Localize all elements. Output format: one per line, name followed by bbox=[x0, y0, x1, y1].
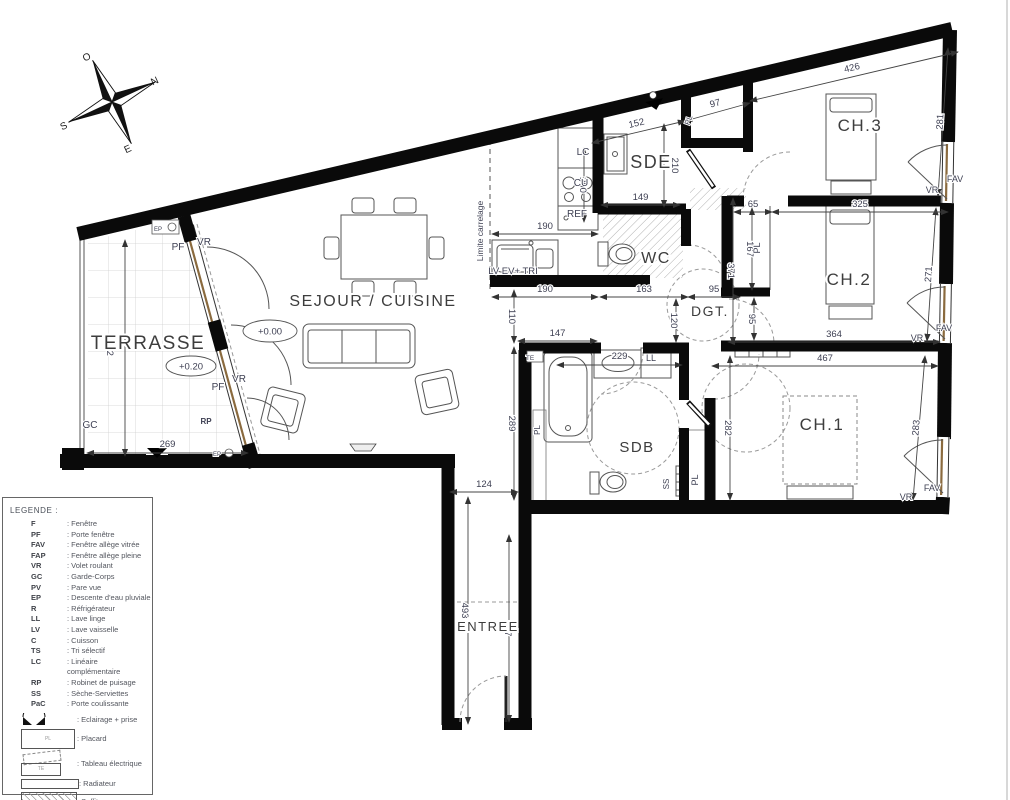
dimension-label: 147 bbox=[550, 328, 566, 339]
sliding-door-sde bbox=[688, 150, 714, 188]
legend-title: LEGENDE : bbox=[10, 506, 152, 515]
armchair bbox=[414, 368, 459, 415]
plan-annotation: VR bbox=[232, 374, 246, 385]
plan-annotation: VR bbox=[911, 333, 924, 343]
plan-annotation: PL bbox=[683, 113, 695, 126]
room-label: DGT. bbox=[691, 303, 729, 319]
plan-annotation: LL bbox=[646, 353, 656, 363]
legend-entry: RP : Robinet de puisage bbox=[3, 678, 152, 689]
legend-abbr: LL bbox=[31, 614, 67, 625]
plan-annotation: EP bbox=[154, 227, 162, 233]
legend-abbr: LC bbox=[31, 657, 67, 668]
legend-label: : Fenêtre allège vitrée bbox=[67, 540, 140, 551]
bathtub bbox=[544, 352, 592, 442]
hob-burner bbox=[565, 193, 574, 202]
legend-symbol-eclairage: : Eclairage + prise bbox=[13, 713, 152, 726]
legend-abbr: FAP bbox=[31, 551, 67, 562]
dimension-label: 95 bbox=[709, 284, 720, 295]
compass-letter: N bbox=[149, 75, 160, 88]
tv-icon bbox=[350, 444, 376, 451]
legend-entry: VR : Volet roulant bbox=[3, 561, 152, 572]
dimension-label: 229 bbox=[612, 351, 628, 362]
legend-label: : Porte coulissante bbox=[67, 699, 129, 710]
plan-annotation: FAV bbox=[936, 323, 952, 333]
armchair bbox=[260, 386, 307, 434]
room-label: ENTREE bbox=[457, 619, 519, 634]
legend-label: : Pare vue bbox=[67, 583, 101, 594]
legend-label: : Tri sélectif bbox=[67, 646, 105, 657]
legend-abbr: F bbox=[31, 519, 67, 530]
legend-label: : Réfrigérateur bbox=[67, 604, 115, 615]
dimension-label: 371 bbox=[725, 263, 736, 279]
plan-annotation: FAV bbox=[924, 483, 940, 493]
tableau-electrique-icon: TE bbox=[21, 752, 65, 776]
legend-entry: R : Réfrigérateur bbox=[3, 604, 152, 615]
room-label: CH.3 bbox=[838, 116, 883, 135]
legend-abbr: R bbox=[31, 604, 67, 615]
dimension-label: 283 bbox=[910, 419, 922, 436]
compass-letter: O bbox=[81, 51, 93, 64]
legend-entry: GC : Garde-Corps bbox=[3, 572, 152, 583]
outer-wall-right bbox=[948, 30, 950, 142]
plan-annotation: VR bbox=[926, 185, 939, 195]
dimension-label: 95 bbox=[746, 314, 757, 325]
plan-annotation: GC bbox=[83, 420, 98, 431]
plan-annotation: RP bbox=[200, 417, 212, 426]
plan-annotation: PF bbox=[212, 382, 225, 393]
legend-symbol-radiateur: : Radiateur bbox=[13, 779, 152, 789]
legend-label: : Descente d'eau pluviale bbox=[67, 593, 151, 604]
dimension-label: 282 bbox=[722, 420, 733, 436]
room-label: SEJOUR / CUISINE bbox=[289, 293, 456, 310]
dimension-label: 281 bbox=[934, 114, 946, 131]
plan-annotation: SS bbox=[662, 479, 671, 490]
wc-door-arc bbox=[688, 245, 726, 283]
legend-panel: LEGENDE : F : Fenêtre PF : Porte fenêtre… bbox=[2, 497, 153, 795]
legend-label: : Lave linge bbox=[67, 614, 105, 625]
dimension-label: 289 bbox=[506, 416, 517, 432]
dimension-label: 325 bbox=[852, 199, 868, 210]
legend-entry: FAV : Fenêtre allège vitrée bbox=[3, 540, 152, 551]
legend-label: : Cuisson bbox=[67, 636, 98, 647]
wc-toilet bbox=[598, 242, 635, 266]
legend-abbr: VR bbox=[31, 561, 67, 572]
legend-label: : Lave vaisselle bbox=[67, 625, 118, 636]
legend-abbr: RP bbox=[31, 678, 67, 689]
legend-abbr: SS bbox=[31, 689, 67, 700]
room-label: CH.2 bbox=[827, 270, 872, 289]
floorplan-page: ONSE 42697152281271283210149200190190163… bbox=[0, 0, 1010, 800]
dimension-label: 190 bbox=[537, 284, 553, 295]
dimension-label: 269 bbox=[160, 439, 176, 450]
room-label: CH.1 bbox=[800, 415, 845, 434]
legend-abbr: TS bbox=[31, 646, 67, 657]
legend-abbr: GC bbox=[31, 572, 67, 583]
room-label: SDB bbox=[619, 439, 654, 456]
plan-annotation: VR bbox=[197, 237, 211, 248]
legend-entry: LV : Lave vaisselle bbox=[3, 625, 152, 636]
compass-letter: E bbox=[123, 143, 134, 156]
legend-entry: TS : Tri sélectif bbox=[3, 646, 152, 657]
dimension-label: 271 bbox=[923, 266, 935, 283]
shower bbox=[604, 134, 627, 174]
legend-entry: SS : Sèche-Serviettes bbox=[3, 689, 152, 700]
turning-circle-sdb bbox=[587, 382, 679, 474]
legend-abbr: PV bbox=[31, 583, 67, 594]
legend-entries: F : Fenêtre PF : Porte fenêtre FAV : Fen… bbox=[3, 519, 152, 710]
legend-label: : Porte fenêtre bbox=[67, 530, 115, 541]
legend-abbr: C bbox=[31, 636, 67, 647]
dimension-label: 65 bbox=[748, 199, 759, 210]
level-label: +0.20 bbox=[179, 362, 203, 373]
ep-circle bbox=[168, 223, 176, 231]
plan-annotation: Limite carrelage bbox=[475, 200, 485, 261]
dimension-label: 190 bbox=[537, 221, 553, 232]
legend-entry: LC : Linéaire complémentaire bbox=[3, 657, 152, 678]
plan-annotation: LC bbox=[577, 147, 590, 158]
legend-abbr: FAV bbox=[31, 540, 67, 551]
plan-annotation: PL bbox=[533, 425, 542, 435]
plan-annotation: TE bbox=[526, 355, 535, 362]
legend-abbr: EP bbox=[31, 593, 67, 604]
ch1-door-arc bbox=[714, 354, 759, 399]
plan-annotation: PF bbox=[172, 242, 185, 253]
legend-entry: PV : Pare vue bbox=[3, 583, 152, 594]
compass-letter: S bbox=[59, 120, 70, 133]
legend-symbol-placard: PL : Placard bbox=[13, 729, 152, 749]
legend-entry: F : Fenêtre bbox=[3, 519, 152, 530]
entry-door bbox=[460, 676, 506, 722]
dining-table bbox=[324, 198, 444, 296]
plan-annotation: PL bbox=[690, 474, 700, 485]
room-label: TERRASSE bbox=[91, 333, 205, 354]
legend-symbol-tableau: TE : Tableau électrique bbox=[13, 752, 152, 776]
legend-label: : Fenêtre allège pleine bbox=[67, 551, 141, 562]
dimension-label: 493 bbox=[459, 603, 470, 619]
legend-entry: LL : Lave linge bbox=[3, 614, 152, 625]
legend-entry: C : Cuisson bbox=[3, 636, 152, 647]
dimension-label: 110 bbox=[506, 309, 517, 324]
dimension-label: 426 bbox=[843, 61, 861, 75]
legend-entry: PaC : Porte coulissante bbox=[3, 699, 152, 710]
bed-ch1 bbox=[783, 396, 857, 499]
plan-annotation: FAV bbox=[947, 174, 963, 184]
legend-entry: FAP : Fenêtre allège pleine bbox=[3, 551, 152, 562]
sofa bbox=[303, 324, 415, 368]
legend-abbr: PaC bbox=[31, 699, 67, 710]
room-label: WC bbox=[641, 250, 671, 267]
dimension-label: 364 bbox=[826, 329, 842, 340]
dimension-label: 120 bbox=[668, 313, 679, 329]
dimension-label: 467 bbox=[817, 353, 833, 364]
placard-icon: PL bbox=[21, 729, 75, 749]
legend-label: : Sèche-Serviettes bbox=[67, 689, 128, 700]
plan-annotation: REF bbox=[567, 209, 587, 220]
level-label: +0.00 bbox=[258, 327, 282, 338]
legend-abbr: LV bbox=[31, 625, 67, 636]
sdb-toilet bbox=[590, 472, 626, 494]
room-label: SDE bbox=[630, 152, 672, 172]
plan-annotation: VR bbox=[900, 492, 913, 502]
legend-label: : Volet roulant bbox=[67, 561, 113, 572]
legend-entry: EP : Descente d'eau pluviale bbox=[3, 593, 152, 604]
dimension-label: 124 bbox=[476, 479, 492, 490]
legend-label: : Robinet de puisage bbox=[67, 678, 136, 689]
dimension-label: 163 bbox=[636, 284, 652, 295]
plan-annotation: CU bbox=[574, 178, 588, 189]
dimension-label: 149 bbox=[633, 192, 649, 203]
soffite-icon bbox=[21, 792, 77, 800]
eclairage-icon bbox=[13, 713, 77, 726]
bed-ch2 bbox=[826, 206, 874, 319]
terrace-door-arc bbox=[207, 247, 269, 309]
bed-ch3 bbox=[826, 94, 876, 194]
plan-annotation: PL bbox=[752, 242, 762, 253]
ch3-door-arc bbox=[743, 152, 790, 199]
legend-abbr: PF bbox=[31, 530, 67, 541]
legend-label: : Fenêtre bbox=[67, 519, 97, 530]
legend-symbol-soffite: : Soffite Faux-plafond bbox=[13, 792, 152, 800]
compass-rose: ONSE bbox=[49, 40, 175, 164]
legend-label: : Linéaire complémentaire bbox=[67, 657, 152, 678]
dimension-label: 97 bbox=[709, 97, 722, 110]
hob-burner bbox=[582, 193, 591, 202]
legend-label: : Garde-Corps bbox=[67, 572, 115, 583]
radiateur-icon bbox=[21, 779, 79, 789]
plan-annotation: EP bbox=[213, 452, 221, 458]
legend-entry: PF : Porte fenêtre bbox=[3, 530, 152, 541]
plan-annotation: LV EV+ TRI bbox=[488, 266, 538, 277]
dimension-label: 152 bbox=[628, 117, 646, 131]
